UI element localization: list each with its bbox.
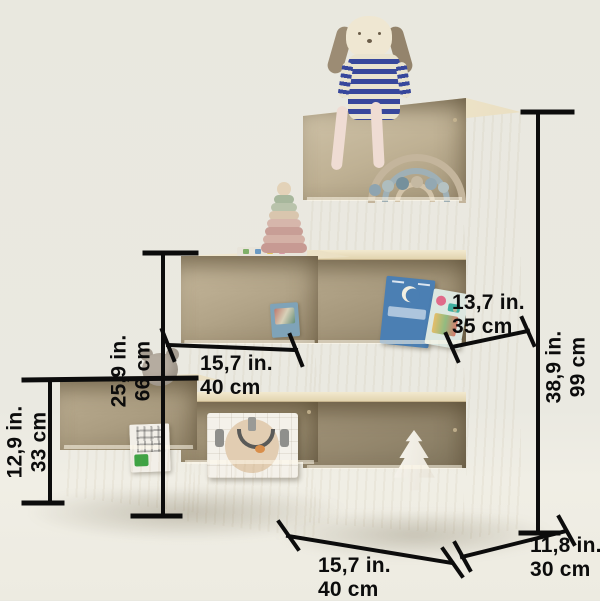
label-base-depth: 11,8 in. 30 cm [530, 534, 600, 581]
label-base-width: 15,7 in. 40 cm [318, 554, 391, 601]
total-height-cm: 99 cm [566, 331, 590, 404]
column3-bin2-panel [303, 340, 466, 394]
upper-depth-in: 13,7 in. [452, 291, 525, 315]
bin-width-in: 15,7 in. [200, 352, 273, 376]
total-height-in: 38,9 in. [542, 331, 566, 404]
shelf1-height-in: 12,9 in. [3, 406, 27, 479]
stacking-pyramid-toy [258, 182, 310, 254]
base-depth-in: 11,8 in. [530, 534, 600, 558]
scene: 12,9 in. 33 cm 25,9 in. 66 cm 38,9 in. 9… [0, 0, 600, 600]
dog-plush-toy [320, 10, 420, 175]
base-width-in: 15,7 in. [318, 554, 391, 578]
base-width-cm: 40 cm [318, 578, 391, 601]
label-upper-depth: 13,7 in. 35 cm [452, 291, 525, 338]
picture-card [270, 302, 300, 338]
base-depth-cm: 30 cm [530, 558, 600, 582]
shelf2-height-cm: 66 cm [131, 335, 155, 408]
column3-bin1-panel [303, 197, 466, 252]
column3-bin3-interior [303, 401, 466, 468]
label-total-height: 38,9 in. 99 cm [542, 331, 589, 404]
label-bin-width: 15,7 in. 40 cm [200, 352, 273, 399]
column3-bin3-panel [303, 465, 466, 540]
bin-width-cm: 40 cm [200, 376, 273, 400]
dog-leg-left [331, 106, 349, 171]
shelf1-height-cm: 33 cm [27, 406, 51, 479]
upper-depth-cm: 35 cm [452, 315, 525, 339]
bead-garland [369, 174, 455, 196]
label-shelf2-height: 25,9 in. 66 cm [107, 335, 154, 408]
column1-bin-panel [60, 445, 197, 515]
column3-shelf-edge-2 [303, 392, 466, 402]
label-shelf1-height: 12,9 in. 33 cm [3, 406, 50, 479]
column2-bin2-panel [181, 460, 318, 545]
dog-head [346, 16, 392, 58]
shelf2-height-in: 25,9 in. [107, 335, 131, 408]
